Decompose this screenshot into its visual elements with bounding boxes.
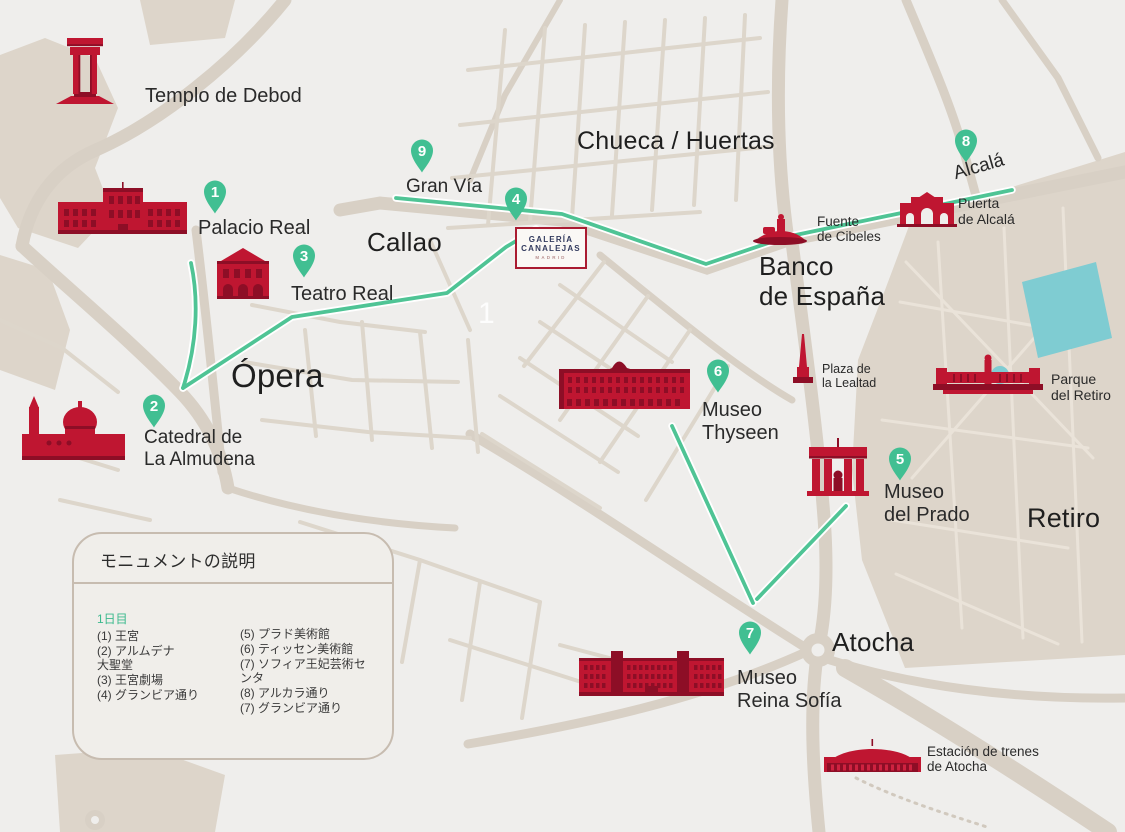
legend-day-label: 1日目	[97, 610, 240, 627]
legend-item: (7) グランビア通り	[240, 702, 370, 716]
pin-icon: 2	[140, 393, 168, 429]
legend-item: (2) アルムデナ 大聖堂	[97, 645, 240, 673]
museo-thyssen-icon	[557, 355, 692, 412]
lealtad-obelisk-icon	[789, 333, 817, 388]
pin-icon: 9	[408, 138, 436, 174]
pin-icon: 5	[886, 446, 914, 482]
legend-item: (5) プラド美術館	[240, 628, 370, 642]
puerta-alcala-icon	[897, 191, 957, 227]
pin-icon: 1	[201, 179, 229, 215]
teatro-real-label: Teatro Real	[291, 283, 393, 306]
district-label-retiro: Retiro	[1027, 503, 1100, 534]
svg-text:1: 1	[211, 184, 219, 201]
district-label-banco-espana: Banco de España	[759, 252, 885, 311]
museo-reina-sofia-icon	[577, 648, 726, 700]
svg-text:4: 4	[512, 191, 521, 208]
pin-icon: 4	[502, 186, 530, 222]
pin-icon: 3	[290, 243, 318, 279]
svg-text:8: 8	[962, 133, 970, 150]
retiro-monument-icon	[933, 352, 1043, 401]
legend-column-day1: 1日目 (1) 王宮 (2) アルムデナ 大聖堂 (3) 王宮劇場 (4) グラ…	[97, 610, 240, 716]
legend-item: (1) 王宮	[97, 630, 240, 644]
galeria-canalejas-logo: GALERÍA CANALEJAS MADRID	[515, 227, 587, 269]
catedral-almudena-icon	[16, 396, 131, 466]
palacio-real-label: Palacio Real	[198, 217, 310, 240]
legend-item: (8) アルカラ通り	[240, 687, 370, 701]
legend-title: モニュメントの説明	[74, 534, 392, 582]
palacio-real-icon	[56, 182, 189, 236]
route-marker-1: 1	[201, 179, 229, 215]
legend-column-right: (5) プラド美術館 (6) ティッセン美術館 (7) ソフィア王妃芸術センタ …	[240, 610, 370, 716]
plaza-lealtad-label: Plaza de la Lealtad	[822, 362, 876, 391]
district-label-callao: Callao	[367, 228, 442, 258]
svg-text:9: 9	[418, 143, 426, 160]
fuente-cibeles-label: Fuente de Cibeles	[817, 214, 881, 245]
legend-panel: モニュメントの説明 1日目 (1) 王宮 (2) アルムデナ 大聖堂 (3) 王…	[72, 532, 394, 760]
museo-reina-sofia-label: Museo Reina Sofía	[737, 667, 842, 713]
canalejas-line3: MADRID	[535, 255, 566, 260]
plaza-number-watermark: 1	[478, 297, 495, 331]
museo-prado-label: Museo del Prado	[884, 481, 970, 527]
legend-item: (7) ソフィア王妃芸術センタ	[240, 658, 370, 686]
madrid-tourist-map: GALERÍA CANALEJAS MADRID 1 2 3 4 5	[0, 0, 1125, 832]
railway-dotted-line	[856, 778, 990, 828]
estacion-atocha-icon	[824, 737, 921, 775]
museo-thyseen-label: Museo Thyseen	[702, 399, 779, 445]
canalejas-line2: CANALEJAS	[521, 245, 581, 253]
svg-text:3: 3	[300, 248, 308, 265]
route-marker-9: 9	[408, 138, 436, 174]
catedral-almudena-label: Catedral de La Almudena	[144, 427, 255, 470]
teatro-real-icon	[211, 245, 275, 300]
route-marker-4: 4	[502, 186, 530, 222]
legend-item: (3) 王宮劇場	[97, 674, 240, 688]
canalejas-line1: GALERÍA	[529, 236, 573, 244]
route-marker-5: 5	[886, 446, 914, 482]
svg-text:6: 6	[714, 363, 722, 380]
legend-item: (6) ティッセン美術館	[240, 643, 370, 657]
puerta-alcala-label: Puerta de Alcalá	[958, 196, 1015, 228]
district-label-chueca-huertas: Chueca / Huertas	[577, 127, 775, 156]
pin-icon: 7	[736, 620, 764, 656]
route-marker-7: 7	[736, 620, 764, 656]
route-marker-2: 2	[140, 393, 168, 429]
svg-text:2: 2	[150, 398, 158, 415]
route-marker-3: 3	[290, 243, 318, 279]
templo-de-debod-icon	[50, 36, 120, 110]
legend-item: (4) グランビア通り	[97, 689, 240, 703]
route-marker-6: 6	[704, 358, 732, 394]
district-label-atocha: Atocha	[832, 628, 914, 658]
district-label-opera: Ópera	[231, 357, 324, 395]
svg-text:7: 7	[746, 625, 754, 642]
estacion-atocha-label: Estación de trenes de Atocha	[927, 744, 1039, 775]
templo-debod-label: Templo de Debod	[145, 85, 302, 108]
gran-via-street-label: Gran Vía	[406, 176, 482, 198]
fuente-cibeles-icon	[752, 212, 808, 246]
parque-retiro-label: Parque del Retiro	[1051, 372, 1111, 404]
museo-prado-icon	[805, 437, 871, 499]
svg-text:5: 5	[896, 451, 904, 468]
pin-icon: 6	[704, 358, 732, 394]
